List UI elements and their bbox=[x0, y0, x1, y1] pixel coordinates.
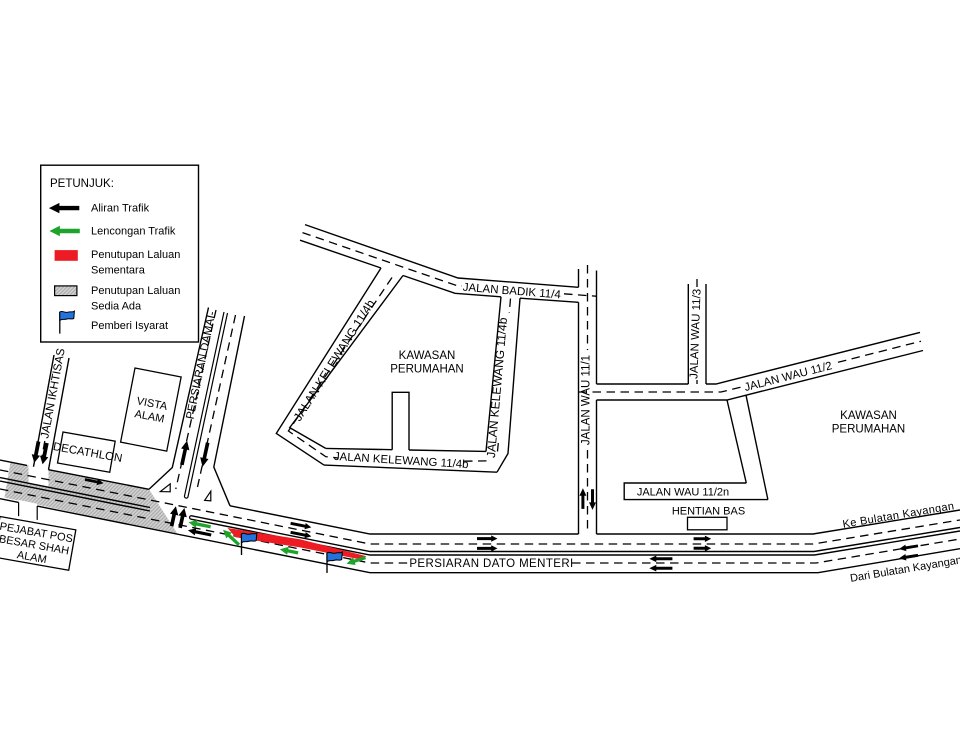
svg-text:JALAN WAU 11/2n: JALAN WAU 11/2n bbox=[637, 487, 729, 499]
svg-text:PERUMAHAN: PERUMAHAN bbox=[390, 364, 463, 376]
svg-text:Pemberi Isyarat: Pemberi Isyarat bbox=[91, 320, 168, 332]
svg-text:PERUMAHAN: PERUMAHAN bbox=[832, 424, 905, 436]
svg-text:HENTIAN BAS: HENTIAN BAS bbox=[672, 506, 745, 518]
svg-text:PETUNJUK:: PETUNJUK: bbox=[50, 178, 114, 190]
svg-text:JALAN WAU 11/1: JALAN WAU 11/1 bbox=[581, 355, 593, 445]
svg-text:Sementara: Sementara bbox=[91, 265, 146, 277]
svg-text:Penutupan Laluan: Penutupan Laluan bbox=[91, 285, 180, 297]
svg-text:Lencongan Trafik: Lencongan Trafik bbox=[91, 226, 176, 238]
svg-text:Penutupan Laluan: Penutupan Laluan bbox=[91, 249, 180, 261]
svg-text:Sedia Ada: Sedia Ada bbox=[91, 301, 142, 313]
svg-text:KAWASAN: KAWASAN bbox=[840, 410, 897, 422]
svg-text:PERSIARAN DATO MENTERI: PERSIARAN DATO MENTERI bbox=[409, 558, 573, 570]
svg-text:KAWASAN: KAWASAN bbox=[399, 350, 456, 362]
svg-text:Aliran Trafik: Aliran Trafik bbox=[91, 203, 150, 215]
